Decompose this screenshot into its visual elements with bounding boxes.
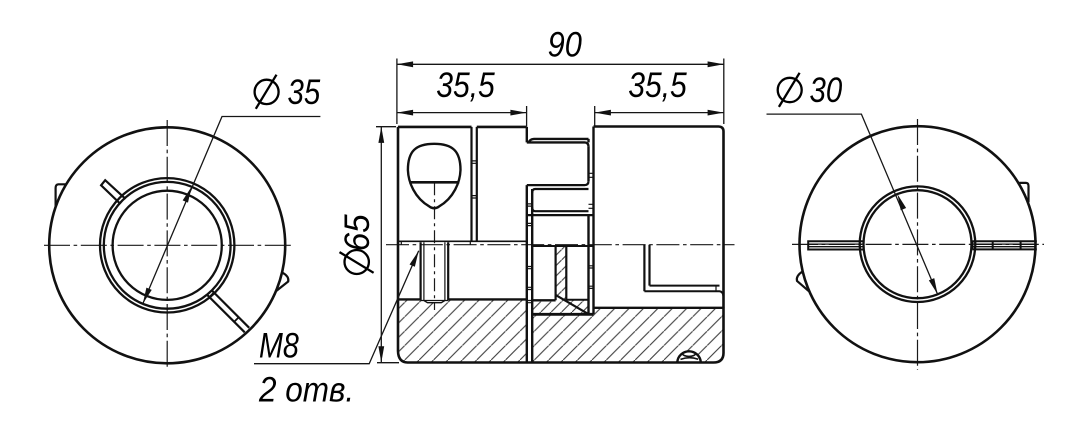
svg-text:35,5: 35,5 (628, 65, 687, 105)
svg-text:35,5: 35,5 (436, 65, 495, 105)
svg-text:2 отв.: 2 отв. (258, 371, 354, 410)
svg-text:65: 65 (338, 213, 377, 251)
svg-text:30: 30 (809, 71, 842, 110)
svg-text:90: 90 (548, 25, 583, 64)
svg-text:M8: M8 (259, 326, 299, 365)
svg-text:35: 35 (288, 73, 322, 112)
